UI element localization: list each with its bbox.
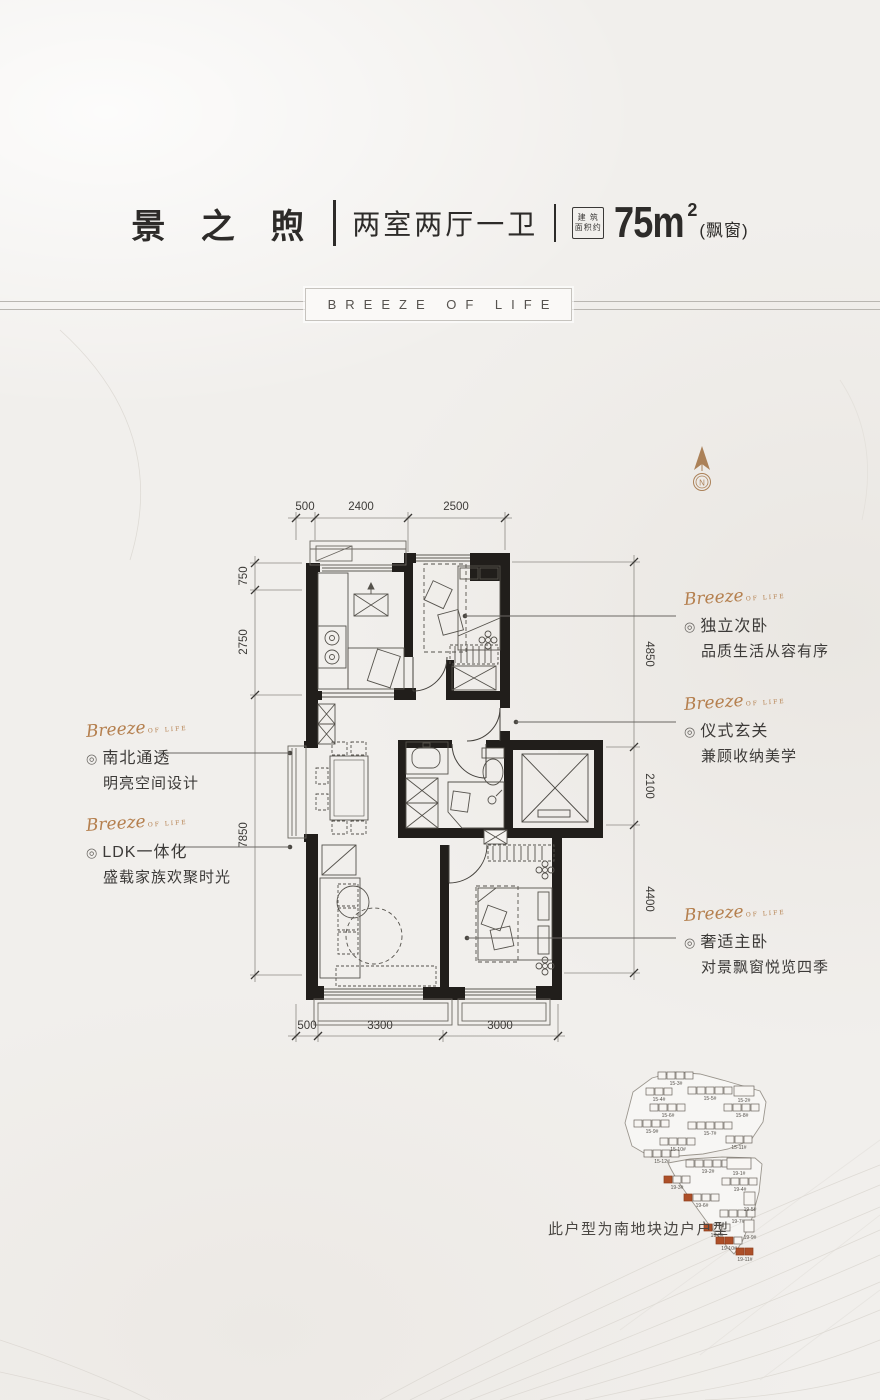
toilet — [482, 748, 504, 758]
annotation-title: 独立次卧 — [700, 618, 768, 635]
area-badge-line1: 建 筑 — [578, 213, 599, 223]
annotation-north-south: BreezeOF LIFE ◎南北通透 明亮空间设计 — [86, 722, 276, 793]
bed-master — [478, 888, 552, 960]
svg-text:15-6#: 15-6# — [662, 1113, 675, 1119]
svg-text:15-3#: 15-3# — [670, 1081, 683, 1087]
svg-text:15-11#: 15-11# — [731, 1145, 746, 1151]
bedroom-master — [476, 830, 554, 975]
svg-text:19-11#: 19-11# — [737, 1257, 752, 1263]
doors — [413, 657, 500, 883]
dining-table — [330, 756, 368, 820]
annotation-secondary-bedroom: BreezeOF LIFE ◎独立次卧 品质生活从容有序 — [684, 590, 874, 661]
fan-icon — [536, 861, 554, 879]
svg-text:19-6#: 19-6# — [696, 1203, 709, 1209]
svg-text:750: 750 — [238, 566, 250, 585]
fan-icon — [479, 631, 497, 649]
svg-text:500: 500 — [295, 501, 314, 513]
bathroom — [406, 742, 504, 828]
area-superscript: 2 — [687, 200, 697, 221]
coffee-table — [346, 908, 402, 964]
site-note: 此户型为南地块边户户型 — [548, 1218, 730, 1239]
area-value: 75m 2 (飘窗) — [614, 198, 748, 248]
bullet-icon: ◎ — [684, 619, 696, 634]
svg-text:19-2#: 19-2# — [702, 1169, 715, 1175]
annotation-title: LDK一体化 — [102, 844, 187, 861]
bullet-icon: ◎ — [684, 935, 696, 950]
stove — [318, 626, 346, 668]
elevator — [522, 752, 588, 822]
banner: BREEZE OF LIFE — [305, 288, 572, 321]
bullet-icon: ◎ — [86, 845, 98, 860]
annotation-desc: 对景飘窗悦览四季 — [684, 956, 874, 977]
kitchen — [318, 573, 404, 697]
page-title: 景 之 煦 — [131, 199, 317, 248]
annotation-desc: 盛载家族欢聚时光 — [86, 866, 276, 887]
bedroom-secondary — [424, 564, 500, 690]
svg-text:19-3#: 19-3# — [671, 1185, 684, 1191]
banner-text: BREEZE OF LIFE — [319, 297, 559, 312]
svg-text:15-10#: 15-10# — [670, 1147, 686, 1153]
annotation-title: 南北通透 — [102, 750, 170, 767]
svg-text:2750: 2750 — [238, 629, 250, 655]
svg-text:4850: 4850 — [643, 641, 655, 667]
annotation-desc: 品质生活从容有序 — [684, 640, 874, 661]
annotation-desc: 明亮空间设计 — [86, 772, 276, 793]
svg-text:3000: 3000 — [487, 1020, 513, 1032]
annotation-title: 仪式玄关 — [700, 723, 768, 740]
svg-text:15-9#: 15-9# — [646, 1129, 659, 1135]
annotation-master-bedroom: BreezeOF LIFE ◎奢适主卧 对景飘窗悦览四季 — [684, 906, 874, 977]
annotation-title: 奢适主卧 — [700, 934, 768, 951]
svg-text:19-9#: 19-9# — [744, 1235, 757, 1241]
svg-text:3300: 3300 — [367, 1020, 393, 1032]
svg-text:19-5#: 19-5# — [744, 1207, 757, 1213]
svg-text:500: 500 — [297, 1020, 316, 1032]
svg-text:15-7#: 15-7# — [704, 1131, 717, 1137]
banner-line-right — [570, 301, 880, 310]
area-badge: 建 筑 面积约 — [572, 207, 604, 239]
annotation-ldk: BreezeOF LIFE ◎LDK一体化 盛载家族欢聚时光 — [86, 816, 276, 887]
shower — [448, 782, 504, 828]
svg-text:19-4#: 19-4# — [734, 1187, 747, 1193]
bullet-icon: ◎ — [684, 724, 696, 739]
bullet-icon: ◎ — [86, 751, 98, 766]
svg-text:15-8#: 15-8# — [736, 1113, 749, 1119]
area-number: 75m — [614, 198, 684, 248]
compass: N — [694, 446, 711, 491]
svg-text:19-10#: 19-10# — [721, 1246, 737, 1252]
svg-text:15-2#: 15-2# — [738, 1098, 751, 1104]
svg-text:19-1#: 19-1# — [733, 1171, 746, 1177]
svg-text:15-4#: 15-4# — [653, 1097, 666, 1103]
area-badge-line2: 面积约 — [575, 223, 602, 233]
annotation-foyer: BreezeOF LIFE ◎仪式玄关 兼顾收纳美学 — [684, 695, 874, 766]
header: 景 之 煦 两室两厅一卫 建 筑 面积约 75m 2 (飘窗) — [0, 198, 880, 248]
svg-text:4400: 4400 — [643, 886, 655, 912]
dining — [316, 704, 368, 834]
title-divider — [333, 200, 336, 246]
title-divider — [554, 204, 556, 242]
svg-text:19-7#: 19-7# — [732, 1219, 745, 1225]
living-room — [320, 845, 436, 986]
svg-text:15-12#: 15-12# — [654, 1159, 670, 1165]
svg-text:15-5#: 15-5# — [704, 1096, 717, 1102]
floor-plan — [288, 541, 603, 1025]
banner-line-left — [0, 301, 305, 310]
svg-text:2100: 2100 — [643, 773, 655, 799]
floorplan-page: N — [0, 0, 880, 1400]
compass-north-label: N — [699, 479, 705, 488]
svg-text:2500: 2500 — [443, 501, 469, 513]
walls — [304, 553, 603, 1000]
annotation-desc: 兼顾收纳美学 — [684, 745, 874, 766]
area-suffix: (飘窗) — [699, 216, 748, 241]
svg-text:2400: 2400 — [348, 501, 374, 513]
layout-type: 两室两厅一卫 — [352, 203, 538, 243]
